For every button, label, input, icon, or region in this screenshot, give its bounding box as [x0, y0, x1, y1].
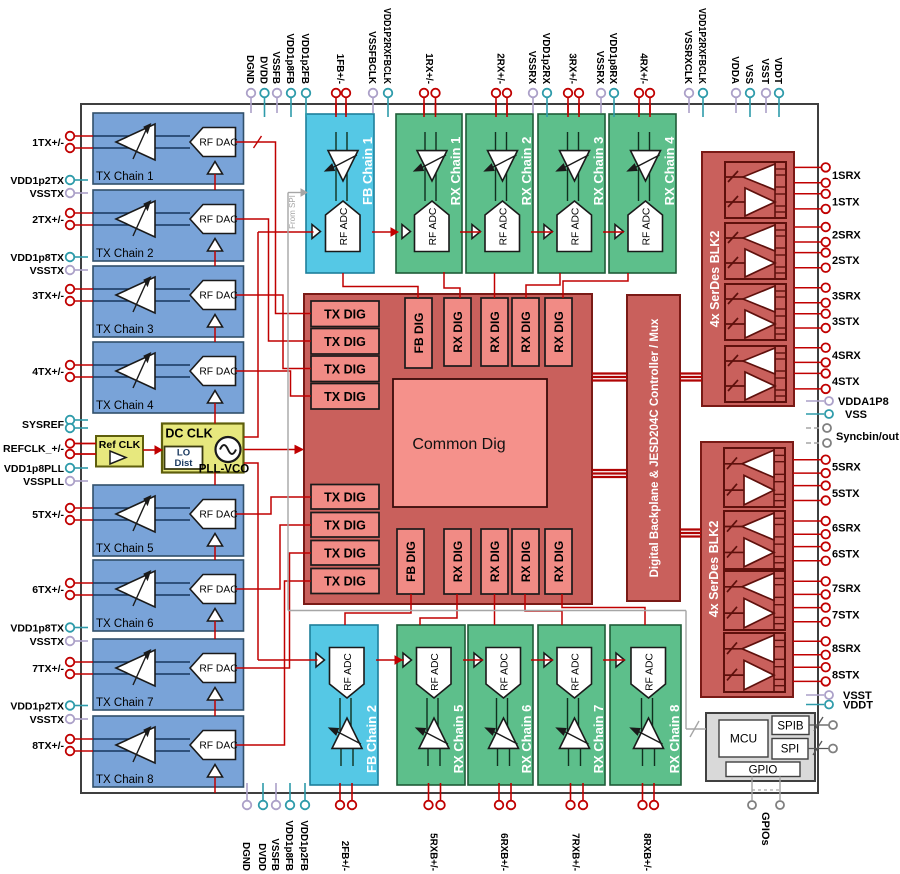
svg-text:TX DIG: TX DIG — [324, 518, 366, 532]
svg-text:RX DIG: RX DIG — [488, 541, 502, 582]
svg-text:TX Chain 2: TX Chain 2 — [96, 248, 154, 260]
svg-text:RX Chain 1: RX Chain 1 — [448, 137, 463, 206]
svg-text:2FB+/-: 2FB+/- — [339, 841, 350, 871]
svg-text:VDD1p8FB: VDD1p8FB — [284, 33, 295, 84]
svg-text:TX Chain 7: TX Chain 7 — [96, 697, 154, 709]
svg-text:VDD1P2RXFBCLK: VDD1P2RXFBCLK — [381, 8, 392, 84]
svg-text:RX Chain 5: RX Chain 5 — [451, 705, 466, 774]
svg-text:TX Chain 1: TX Chain 1 — [96, 171, 154, 183]
svg-text:TX DIG: TX DIG — [324, 575, 366, 589]
svg-text:1STX: 1STX — [832, 196, 860, 208]
svg-text:8TX+/-: 8TX+/- — [32, 740, 64, 752]
svg-text:From SPI: From SPI — [288, 195, 297, 229]
svg-text:RF ADC: RF ADC — [645, 653, 656, 691]
svg-text:DC CLK: DC CLK — [165, 427, 212, 441]
svg-text:RF DAC: RF DAC — [199, 367, 238, 378]
svg-text:Syncbin/out: Syncbin/out — [836, 431, 899, 443]
svg-text:TX Chain 5: TX Chain 5 — [96, 543, 154, 555]
svg-text:7TX+/-: 7TX+/- — [32, 663, 64, 675]
svg-text:RX Chain 2: RX Chain 2 — [519, 137, 534, 206]
svg-text:1SRX: 1SRX — [832, 170, 861, 182]
svg-text:8SRX: 8SRX — [832, 643, 861, 655]
svg-text:TX DIG: TX DIG — [324, 335, 366, 349]
svg-text:VSSTX: VSSTX — [30, 714, 64, 726]
svg-text:2TX+/-: 2TX+/- — [32, 214, 64, 226]
svg-text:RF DAC: RF DAC — [199, 291, 238, 302]
svg-text:VDDA: VDDA — [729, 56, 740, 84]
svg-text:FB Chain 2: FB Chain 2 — [364, 705, 379, 773]
svg-text:3TX+/-: 3TX+/- — [32, 290, 64, 302]
svg-text:RX DIG: RX DIG — [519, 311, 533, 352]
svg-text:DVDD: DVDD — [258, 56, 269, 84]
svg-text:TX Chain 8: TX Chain 8 — [96, 774, 154, 786]
svg-text:VSSFB: VSSFB — [270, 51, 281, 84]
svg-text:RX Chain 7: RX Chain 7 — [591, 705, 606, 774]
svg-text:Common Dig: Common Dig — [412, 436, 505, 453]
svg-text:VSSFBCLK: VSSFBCLK — [366, 31, 377, 84]
svg-text:RX DIG: RX DIG — [519, 541, 533, 582]
svg-text:LO: LO — [177, 448, 190, 459]
svg-text:VSS: VSS — [743, 64, 754, 84]
svg-text:1FB+/-: 1FB+/- — [334, 54, 345, 84]
svg-text:VSSTX: VSSTX — [30, 636, 64, 648]
svg-text:6RXB+/-: 6RXB+/- — [498, 833, 509, 871]
svg-text:RX Chain 6: RX Chain 6 — [519, 705, 534, 774]
svg-text:REFCLK_+/-: REFCLK_+/- — [3, 443, 64, 455]
svg-text:6TX+/-: 6TX+/- — [32, 584, 64, 596]
svg-text:4RX+/-: 4RX+/- — [638, 53, 649, 84]
svg-text:8RXB+/-: 8RXB+/- — [641, 833, 652, 871]
svg-text:3SRX: 3SRX — [832, 290, 861, 302]
svg-text:VDD1p8TX: VDD1p8TX — [10, 623, 64, 635]
svg-text:RX Chain 4: RX Chain 4 — [662, 136, 677, 205]
svg-text:5SRX: 5SRX — [832, 461, 861, 473]
svg-text:FB Chain 1: FB Chain 1 — [360, 137, 375, 205]
svg-text:VDD1p8TX: VDD1p8TX — [10, 252, 64, 264]
svg-text:Dist: Dist — [175, 458, 194, 469]
svg-text:VSS: VSS — [845, 409, 867, 421]
svg-text:7RXB+/-: 7RXB+/- — [570, 833, 581, 871]
svg-text:RF DAC: RF DAC — [199, 664, 238, 675]
svg-text:5TX+/-: 5TX+/- — [32, 509, 64, 521]
svg-text:DGND: DGND — [240, 842, 251, 871]
svg-text:RF ADC: RF ADC — [500, 653, 511, 691]
svg-text:VSST: VSST — [759, 58, 770, 84]
svg-text:SPIB: SPIB — [777, 721, 804, 733]
svg-text:RF ADC: RF ADC — [642, 207, 653, 245]
svg-text:VSSTX: VSSTX — [30, 188, 64, 200]
svg-text:VDDT: VDDT — [772, 57, 783, 84]
svg-text:RF ADC: RF ADC — [428, 207, 439, 245]
svg-text:RX Chain 3: RX Chain 3 — [591, 137, 606, 206]
svg-text:VSSPLL: VSSPLL — [23, 476, 64, 488]
svg-text:TX DIG: TX DIG — [324, 546, 366, 560]
svg-text:3RX+/-: 3RX+/- — [567, 53, 578, 84]
svg-text:GPIOs: GPIOs — [759, 812, 771, 846]
svg-text:VDDT: VDDT — [843, 700, 873, 712]
svg-text:VDD1P2RXFBCLK: VDD1P2RXFBCLK — [696, 8, 707, 84]
svg-text:TX Chain 4: TX Chain 4 — [96, 400, 154, 412]
svg-text:5STX: 5STX — [832, 488, 860, 500]
svg-text:RX Chain 8: RX Chain 8 — [667, 705, 682, 774]
svg-text:2RX+/-: 2RX+/- — [495, 53, 506, 84]
svg-text:2STX: 2STX — [832, 255, 860, 267]
svg-text:4TX+/-: 4TX+/- — [32, 366, 64, 378]
svg-text:4x SerDes BLK2: 4x SerDes BLK2 — [707, 521, 721, 618]
svg-text:6SRX: 6SRX — [832, 523, 861, 535]
svg-text:6STX: 6STX — [832, 549, 860, 561]
svg-text:4STX: 4STX — [832, 376, 860, 388]
svg-text:4x SerDes BLK2: 4x SerDes BLK2 — [708, 231, 722, 328]
svg-text:SYSREF: SYSREF — [22, 419, 65, 431]
svg-text:RF ADC: RF ADC — [339, 207, 350, 245]
svg-text:VDD1p2RX: VDD1p2RX — [540, 33, 551, 85]
svg-text:Ref CLK: Ref CLK — [99, 439, 141, 451]
svg-text:VSSRX: VSSRX — [526, 51, 537, 85]
svg-text:4SRX: 4SRX — [832, 350, 861, 362]
svg-text:7SRX: 7SRX — [832, 583, 861, 595]
svg-text:Digital Backplane & JESD204C C: Digital Backplane & JESD204C Controller … — [649, 318, 661, 577]
svg-text:RF ADC: RF ADC — [430, 653, 441, 691]
svg-text:RF DAC: RF DAC — [199, 585, 238, 596]
svg-text:VDD1p8PLL: VDD1p8PLL — [4, 463, 65, 475]
svg-text:RF ADC: RF ADC — [571, 207, 582, 245]
svg-text:8STX: 8STX — [832, 669, 860, 681]
svg-text:VDD1p2TX: VDD1p2TX — [10, 701, 64, 713]
svg-text:GPIO: GPIO — [749, 765, 778, 777]
svg-text:TX DIG: TX DIG — [324, 362, 366, 376]
svg-text:VDD1p2FB: VDD1p2FB — [298, 820, 309, 871]
svg-text:DGND: DGND — [244, 55, 255, 84]
svg-text:DVDD: DVDD — [256, 843, 267, 871]
svg-text:RX DIG: RX DIG — [488, 311, 502, 352]
svg-text:FB DIG: FB DIG — [412, 313, 426, 354]
svg-text:RX DIG: RX DIG — [451, 311, 465, 352]
svg-text:VDD1p8RX: VDD1p8RX — [607, 33, 618, 85]
svg-text:VDD1p8FB: VDD1p8FB — [283, 820, 294, 871]
svg-text:RF ADC: RF ADC — [499, 207, 510, 245]
svg-text:TX DIG: TX DIG — [324, 490, 366, 504]
svg-text:VSSRXCLK: VSSRXCLK — [682, 31, 693, 84]
svg-text:RX DIG: RX DIG — [552, 311, 566, 352]
svg-text:PLL-VCO: PLL-VCO — [199, 464, 250, 476]
svg-text:3STX: 3STX — [832, 316, 860, 328]
svg-text:1RX+/-: 1RX+/- — [423, 53, 434, 84]
svg-text:RF DAC: RF DAC — [199, 741, 238, 752]
svg-text:SPI: SPI — [781, 744, 800, 756]
svg-text:1TX+/-: 1TX+/- — [32, 137, 64, 149]
svg-text:VSSRX: VSSRX — [594, 51, 605, 85]
svg-text:RF DAC: RF DAC — [199, 138, 238, 149]
svg-text:TX DIG: TX DIG — [324, 390, 366, 404]
svg-text:RF ADC: RF ADC — [343, 653, 354, 691]
svg-text:VDD1p2FB: VDD1p2FB — [299, 33, 310, 84]
svg-text:TX Chain 3: TX Chain 3 — [96, 324, 154, 336]
svg-text:7STX: 7STX — [832, 610, 860, 622]
svg-text:VSSTX: VSSTX — [30, 265, 64, 277]
svg-text:MCU: MCU — [730, 732, 757, 746]
svg-text:VDD1p2TX: VDD1p2TX — [10, 175, 64, 187]
svg-text:TX DIG: TX DIG — [324, 307, 366, 321]
svg-text:RX DIG: RX DIG — [552, 541, 566, 582]
svg-text:TX Chain 6: TX Chain 6 — [96, 618, 154, 630]
svg-text:2SRX: 2SRX — [832, 230, 861, 242]
svg-text:RF DAC: RF DAC — [199, 215, 238, 226]
svg-text:FB DIG: FB DIG — [404, 541, 418, 582]
svg-text:RF DAC: RF DAC — [199, 510, 238, 521]
svg-text:VDDA1P8: VDDA1P8 — [838, 396, 889, 408]
svg-text:VSSFB: VSSFB — [269, 838, 280, 871]
svg-text:RF ADC: RF ADC — [571, 653, 582, 691]
svg-text:RX DIG: RX DIG — [451, 541, 465, 582]
svg-text:5RXB+/-: 5RXB+/- — [428, 833, 439, 871]
